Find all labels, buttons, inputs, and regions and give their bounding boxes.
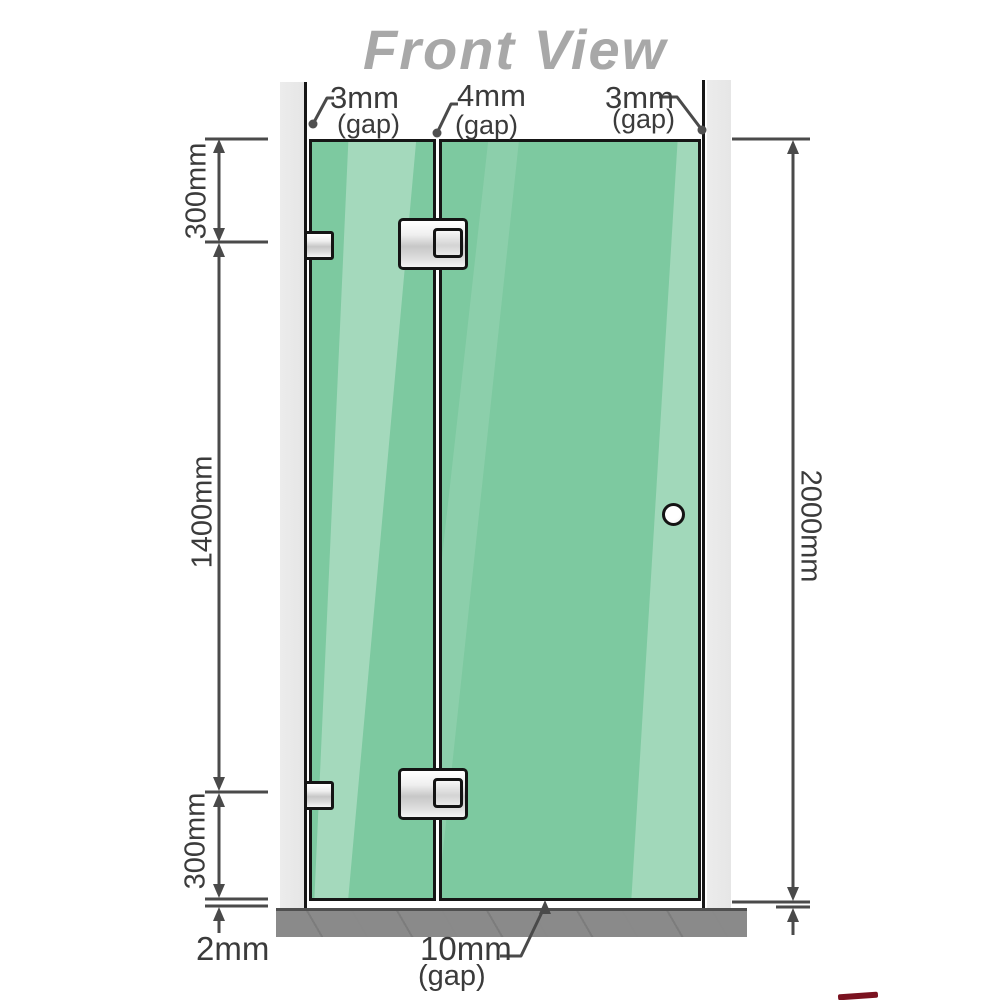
hinge-clamp-plate [433,778,463,808]
gap-label-middle-suffix: (gap) [455,112,518,139]
door-hinge-top [398,218,468,270]
dimension-label-300mm-top: 300mm [183,143,212,240]
gap-label-left-suffix: (gap) [337,111,400,138]
gap-label-middle-value: 4mm [457,80,526,111]
dimension-label-300mm-bottom: 300mm [182,793,211,890]
door-glass-panel [439,139,701,901]
dimension-label-2000mm: 2000mm [796,470,825,583]
door-hinge-bottom [398,768,468,820]
door-bottom-gap-suffix: (gap) [418,962,486,991]
right-wall [707,80,731,908]
watermark-fragment [838,992,878,1000]
left-wall [280,82,304,908]
page-title: Front View [363,22,667,78]
floor-gap-label-2mm: 2mm [196,932,269,965]
dimension-label-1400mm: 1400mm [189,456,218,569]
shower-screen-front-view-diagram: Front View [0,0,1000,1000]
gap-label-right-suffix: (gap) [612,106,675,133]
wall-bracket-top [304,231,334,260]
wall-bracket-bottom [304,781,334,810]
hinge-clamp-plate [433,228,463,258]
right-wall-edge-line [702,80,705,908]
door-handle-knob [662,503,685,526]
